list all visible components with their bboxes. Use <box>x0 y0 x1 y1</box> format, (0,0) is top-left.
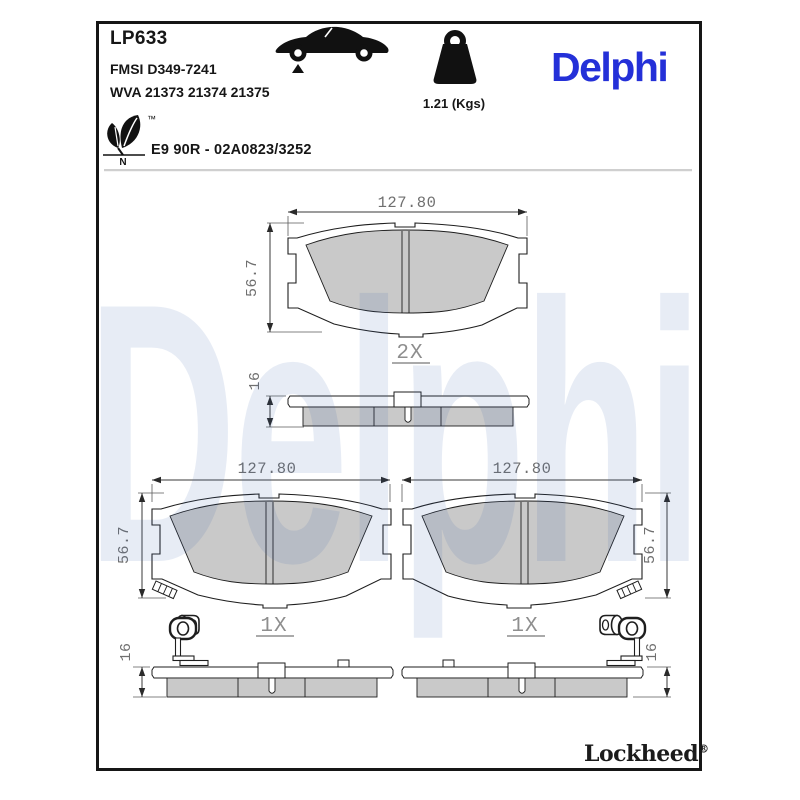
eco-leaf-letter: N <box>119 157 126 168</box>
height-dimension: 56.7 <box>244 259 261 297</box>
car-icon <box>272 24 396 76</box>
brake-pad-side-shape <box>152 663 393 697</box>
brake-pad-side-shape <box>402 663 643 697</box>
wear-sensor-icon <box>170 618 208 666</box>
lockheed-logo: Lockheed® <box>584 741 709 767</box>
wva-reference: WVA 21373 21374 21375 <box>110 84 270 100</box>
front-axle-arrow-icon <box>292 64 304 73</box>
thickness-dimension: 16 <box>247 371 264 390</box>
side-view-drawing-right: 16 <box>395 615 700 715</box>
header-divider <box>104 169 692 171</box>
approval-code: E9 90R - 02A0823/3252 <box>151 142 312 158</box>
thickness-dimension: 16 <box>118 642 135 661</box>
width-dimension: 127.80 <box>493 460 552 478</box>
brake-pad-front-shape-with-wear-tab <box>403 494 642 608</box>
lockheed-logo-text: Lockheed <box>584 741 698 767</box>
side-view-drawing-top: 16 <box>240 365 540 445</box>
front-view-drawing-top: 127.80 56.7 2X <box>240 190 540 370</box>
datasheet-page: LP633 FMSI D349-7241 WVA 21373 21374 213… <box>0 0 800 800</box>
height-dimension: 56.7 <box>116 526 133 564</box>
registered-symbol: ® <box>698 743 709 756</box>
brake-pad-front-shape <box>288 223 527 337</box>
side-view-drawing-left: 16 <box>100 615 400 715</box>
brake-pad-side-shape <box>288 392 529 426</box>
width-dimension: 127.80 <box>238 460 297 478</box>
height-dimension: 56.7 <box>642 526 659 564</box>
quantity-label: 2X <box>396 342 423 365</box>
plate-tab <box>338 660 349 667</box>
fmsi-reference: FMSI D349-7241 <box>110 61 217 77</box>
part-number: LP633 <box>110 28 167 50</box>
wear-sensor-icon <box>607 618 645 666</box>
thickness-dimension: 16 <box>644 642 661 661</box>
delphi-logo: Delphi <box>551 44 667 91</box>
trademark-symbol: ™ <box>147 114 156 124</box>
brake-pad-front-shape-with-wear-tab <box>152 494 391 608</box>
weight-icon <box>426 30 484 92</box>
weight-value: 1.21 (Kgs) <box>404 96 504 111</box>
plate-tab <box>443 660 454 667</box>
width-dimension: 127.80 <box>378 194 437 212</box>
eco-leaf-icon: N ™ <box>103 113 153 167</box>
